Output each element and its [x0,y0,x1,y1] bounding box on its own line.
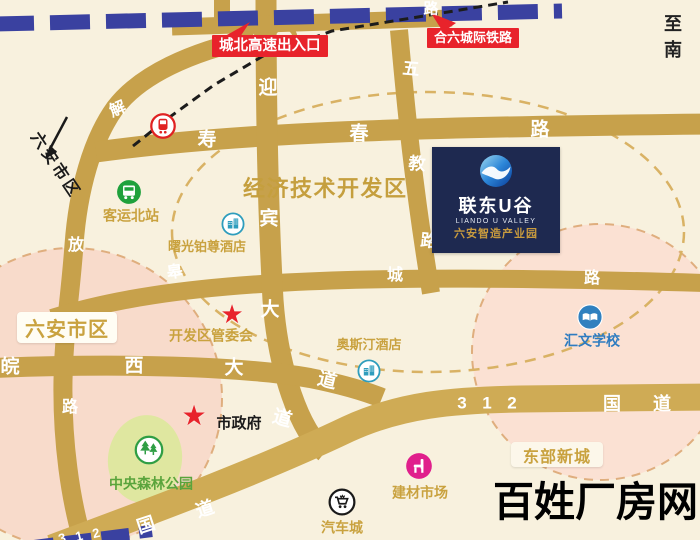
market-icon [405,452,433,480]
school-icon [577,304,604,331]
liando-swirl-icon [478,153,514,189]
road-label-char-wanxi-avenue: 西 [124,357,143,376]
hotel-icon [357,359,381,383]
road-label-char-g312-national-road: 3 [457,395,466,412]
road-label-char-shouchun-road: 路 [530,121,549,140]
park-icon [134,435,164,465]
landmark-subtitle: 六安智造产业园 [454,229,538,240]
huiwen-school-label: 汇文学校 [564,333,620,348]
road-label-char-g312-national-road: 2 [507,395,516,412]
road-label-char-g312-national-road: 道 [653,395,671,413]
hotel-icon [221,212,245,236]
bus-icon [116,179,142,205]
road-label-char-shouchun-road: 春 [349,125,368,144]
road-label-char-gaocheng-road: 城 [387,268,403,284]
road-label-char-g312-national-road: 1 [482,395,491,412]
city-hall-star-icon: ★ [180,402,208,430]
watermark-text: 百姓厂房网 [493,482,698,523]
location-map: 解放路寿春路路迎宾大道五教路皖西大道皋城路312国道国道312 客运北站曙光铂尊… [0,0,700,540]
city-hall-label: 市政府 [216,416,261,433]
road-label-char-g312-national-road: 国 [603,395,621,413]
austin-hotel-label: 奥斯汀酒店 [336,338,401,352]
road-label-char-wujiao-road: 教 [408,155,426,173]
east-new-town-box: 东部新城 [511,442,603,467]
train-icon [150,113,177,140]
east-new-town-label: 东部新城 [523,443,591,467]
road-label-char-gaocheng-road: 皋 [166,264,184,282]
road-label-char-wanxi-avenue: 皖 [0,358,19,377]
building-material-market-label: 建材市场 [392,485,448,500]
development-zone-committee-star-icon: ★ [219,301,245,327]
highway-exit-callout-label: 城北高速出入口 [219,38,321,54]
cart-icon [328,488,356,516]
road-label-char-wujiao-road: 五 [402,60,420,78]
road-label-char-jiefang-road: 路 [62,400,78,416]
road-label-char-shouchun-road: 寿 [197,131,216,150]
zone-title: 经济技术开发区 [243,171,408,203]
auto-city-label: 汽车城 [321,520,363,535]
road-label-char-yingbin-avenue: 大 [260,301,279,320]
highway-exit-callout: 城北高速出入口 [212,35,328,57]
luan-downtown-label: 六安市区 [25,313,109,342]
landmark-name-cn: 联东U谷 [459,197,534,215]
corner-direction-note: 至南 [664,10,700,62]
shuguang-platinum-hotel-label: 曙光铂尊酒店 [168,240,246,254]
luan-downtown-box: 六安市区 [17,312,117,343]
road-label-char-yingbin-avenue: 宾 [259,210,278,229]
road-label-char-yingbin-avenue: 迎 [258,79,277,98]
north-bus-station-label: 客运北站 [103,208,159,223]
landmark-name-en: LIANDO U VALLEY [456,218,536,225]
road-label-char-jiefang-road: 放 [68,238,84,254]
intercity-railway-callout-label: 合六城际铁路 [434,30,512,45]
development-zone-committee-label: 开发区管委会 [169,328,253,343]
road-label-char-gaocheng-road: 路 [584,271,600,287]
intercity-railway-callout: 合六城际铁路 [427,28,519,48]
liando-u-valley-card: 联东U谷 LIANDO U VALLEY 六安智造产业园 [432,147,560,253]
road-label-char-wanxi-avenue: 大 [224,359,243,378]
road-label-char-north-ring-road: 路 [423,2,438,17]
central-forest-park-label: 中央森林公园 [109,476,193,491]
